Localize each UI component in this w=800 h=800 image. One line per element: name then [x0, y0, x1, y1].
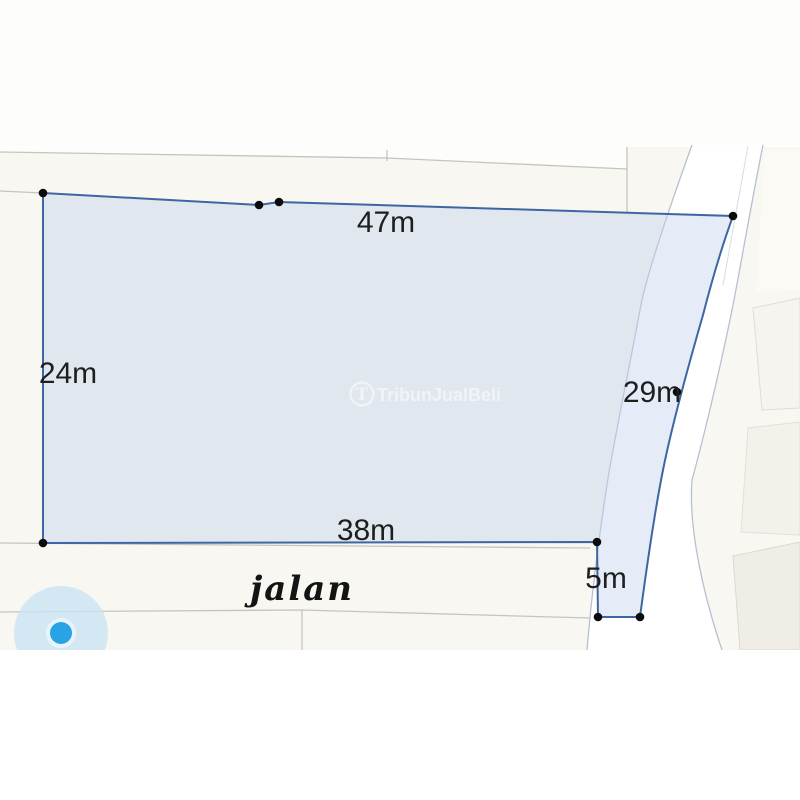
building-block [733, 542, 800, 650]
upper-parcel [0, 0, 800, 169]
measurement-notch: 5m [585, 562, 627, 595]
watermark-text: TribunJualBeli [377, 385, 501, 405]
building-block [741, 422, 800, 535]
vertex-dot [636, 613, 645, 622]
measurement-top: 47m [357, 206, 415, 239]
road-name-label: jalan [244, 569, 354, 609]
measurement-bottom: 38m [337, 514, 395, 547]
building-block [753, 298, 800, 410]
marker-dot [50, 622, 72, 644]
vertex-dot [729, 212, 738, 221]
location-marker [14, 586, 108, 680]
map-canvas: 47m 24m 29m 38m 5m jalan T TribunJualBel… [0, 0, 800, 800]
vertex-dot [39, 189, 48, 198]
vertex-dot [594, 613, 603, 622]
watermark-logo-letter: T [356, 385, 369, 405]
vertex-dot [39, 539, 48, 548]
land-plot-map-screenshot: 47m 24m 29m 38m 5m jalan T TribunJualBel… [0, 0, 800, 800]
vertex-dot [593, 538, 602, 547]
vertex-dot [275, 198, 284, 207]
measurement-left: 24m [39, 357, 97, 390]
vertex-dot [255, 201, 264, 210]
measurement-right: 29m [623, 376, 681, 409]
